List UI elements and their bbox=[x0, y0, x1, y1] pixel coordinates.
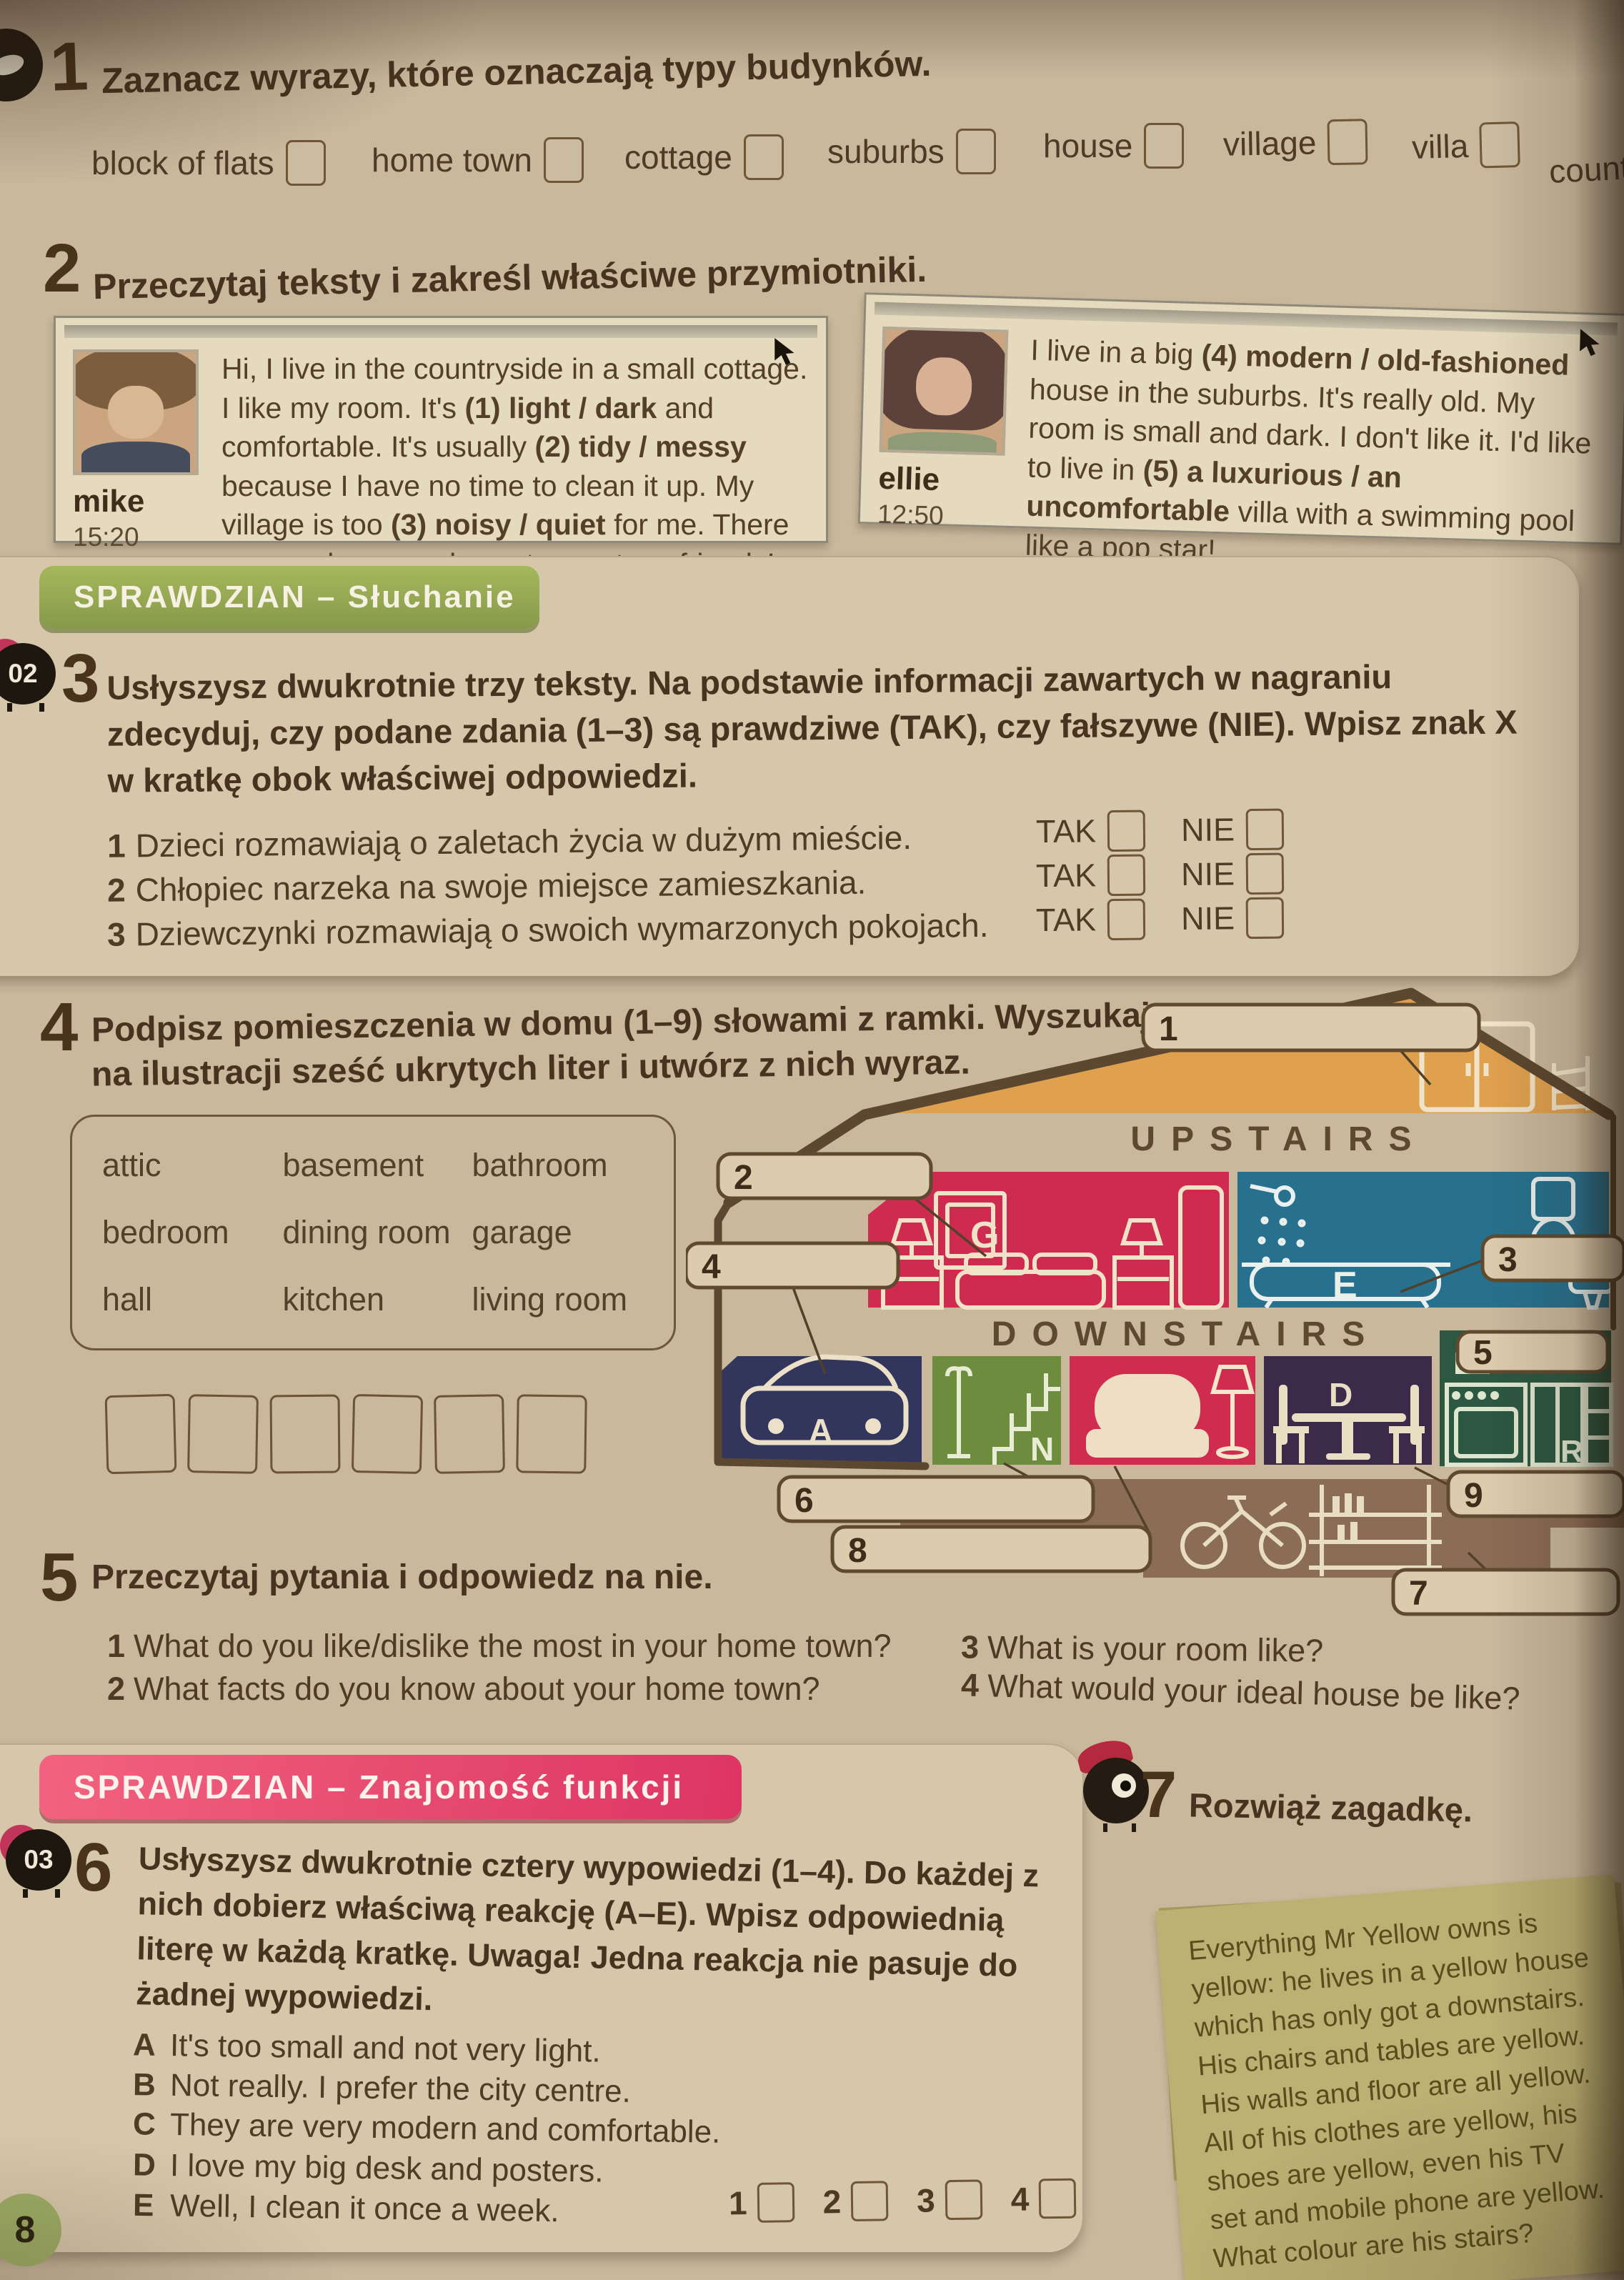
word-label: villa bbox=[1411, 126, 1469, 166]
banner-listening: SPRAWDZIAN – Słuchanie bbox=[39, 566, 539, 629]
avatar-ellie bbox=[879, 327, 1008, 456]
ex7-number: 7 bbox=[1140, 1762, 1177, 1828]
mascot-icon-partial bbox=[0, 29, 43, 101]
chat-post-ellie: ellie 12:50 I live in a big (4) modern /… bbox=[858, 292, 1624, 545]
post-author: ellie bbox=[878, 461, 1012, 500]
post-author: mike bbox=[73, 484, 206, 519]
ex5-title: Przeczytaj pytania i odpowiedz na nie. bbox=[91, 1558, 713, 1597]
bank-word: attic bbox=[102, 1147, 282, 1184]
word-checkbox[interactable] bbox=[1327, 119, 1368, 165]
letter-square[interactable] bbox=[105, 1394, 177, 1475]
audio-track-icon: 03 bbox=[6, 1829, 71, 1898]
nie-label: NIE bbox=[1181, 900, 1235, 937]
letter-square[interactable] bbox=[187, 1394, 259, 1474]
word-label: block of flats bbox=[91, 144, 274, 182]
answer-number: 3 bbox=[917, 2181, 935, 2219]
word-checkbox[interactable] bbox=[1479, 121, 1520, 168]
ex2-number: 2 bbox=[43, 234, 81, 303]
hall-room: N bbox=[932, 1356, 1061, 1468]
word-option: villa bbox=[1411, 121, 1520, 170]
ex5-question-3: 3What is your room like? bbox=[961, 1628, 1324, 1669]
letter-square[interactable] bbox=[270, 1395, 341, 1474]
post-header-bar bbox=[64, 325, 817, 338]
answer-box-4[interactable] bbox=[1039, 2179, 1077, 2219]
letter-square[interactable] bbox=[516, 1394, 587, 1473]
house-label-number-8: 8 bbox=[848, 1532, 867, 1570]
hidden-letter-n: N bbox=[1030, 1430, 1054, 1468]
tak-label: TAK bbox=[1036, 812, 1097, 850]
post-time: 12:50 bbox=[877, 499, 1010, 533]
page-number: 8 bbox=[15, 2209, 36, 2251]
house-label-number-4: 4 bbox=[702, 1248, 721, 1286]
house-label-box-1[interactable] bbox=[1143, 1005, 1479, 1050]
house-illustration: G E UPSTAIRS DOWNSTAIRS bbox=[686, 985, 1624, 1628]
ex7-title: Rozwiąż zagadkę. bbox=[1189, 1786, 1473, 1830]
post-text: I live in a big (4) modern / old-fashion… bbox=[1009, 330, 1608, 580]
answer-box-3[interactable] bbox=[945, 2179, 982, 2220]
ex5-question-1: 1What do you like/dislike the most in yo… bbox=[107, 1628, 892, 1665]
ex5-question-4: 4What would your ideal house be like? bbox=[960, 1666, 1520, 1717]
word-checkbox[interactable] bbox=[544, 137, 584, 183]
word-checkbox[interactable] bbox=[744, 134, 784, 180]
bank-word: kitchen bbox=[282, 1281, 472, 1318]
word-checkbox[interactable] bbox=[1144, 123, 1184, 169]
banner-listening-label: SPRAWDZIAN – Słuchanie bbox=[74, 579, 516, 615]
item-number: 1 bbox=[107, 827, 126, 865]
ex6-option-e: EWell, I clean it once a week. bbox=[133, 2186, 559, 2231]
item-text: Dziewczynki rozmawiają o swoich wymarzon… bbox=[135, 907, 988, 952]
ex6-instruction: Usłyszysz dwukrotnie cztery wypowiedzi (… bbox=[136, 1836, 1090, 2033]
word-option: village bbox=[1222, 119, 1368, 167]
ex1-title: Zaznacz wyrazy, które oznaczają typy bud… bbox=[101, 43, 932, 101]
house-label-number-3: 3 bbox=[1498, 1241, 1518, 1279]
mouse-cursor-icon bbox=[772, 337, 802, 369]
item-number: 3 bbox=[107, 916, 126, 953]
answer-box-2[interactable] bbox=[851, 2181, 889, 2221]
post-text: Hi, I live in the countryside in a small… bbox=[206, 349, 809, 583]
word-option: home town bbox=[372, 137, 584, 183]
ex6-number: 6 bbox=[74, 1833, 112, 1902]
ex3-number: 3 bbox=[61, 644, 99, 713]
tak-checkbox[interactable] bbox=[1107, 899, 1146, 941]
ex2-title: Przeczytaj teksty i zakreśl właściwe prz… bbox=[93, 249, 927, 307]
word-label: cottage bbox=[624, 138, 732, 176]
word-label: village bbox=[1223, 123, 1317, 163]
answer-number: 4 bbox=[1010, 2180, 1029, 2219]
hidden-letter-a: A bbox=[809, 1412, 832, 1449]
ex5-question-2: 2What facts do you know about your home … bbox=[107, 1671, 820, 1708]
tak-checkbox[interactable] bbox=[1107, 855, 1146, 897]
bank-word: garage bbox=[472, 1214, 652, 1251]
ex1-number: 1 bbox=[49, 32, 89, 102]
item-number: 2 bbox=[107, 872, 126, 909]
bank-word: living room bbox=[472, 1281, 652, 1318]
nie-checkbox[interactable] bbox=[1246, 809, 1285, 851]
word-checkbox[interactable] bbox=[286, 140, 326, 186]
ex6-answer-row: 1 2 3 4 bbox=[729, 2179, 1077, 2224]
answer-box-1[interactable] bbox=[757, 2182, 794, 2223]
word-label: home town bbox=[372, 141, 532, 179]
answer-number: 1 bbox=[729, 2184, 747, 2222]
letter-square[interactable] bbox=[352, 1394, 423, 1474]
bank-word: bedroom bbox=[102, 1214, 282, 1251]
ex3-instruction: Usłyszysz dwukrotnie trzy teksty. Na pod… bbox=[106, 652, 1544, 804]
banner-functions: SPRAWDZIAN – Znajomość funkcji bbox=[39, 1755, 742, 1819]
house-label-number-2: 2 bbox=[734, 1159, 753, 1197]
ex5-number: 5 bbox=[40, 1543, 78, 1612]
word-label: house bbox=[1043, 126, 1132, 165]
bank-word: bathroom bbox=[472, 1147, 652, 1184]
living-room bbox=[1070, 1356, 1255, 1465]
word-checkbox[interactable] bbox=[956, 129, 996, 174]
nie-label: NIE bbox=[1181, 811, 1235, 849]
armchair-icon bbox=[1086, 1374, 1209, 1458]
house-label-box-6[interactable] bbox=[779, 1477, 1093, 1521]
bank-word: basement bbox=[282, 1147, 472, 1184]
post-time: 15:20 bbox=[73, 522, 206, 552]
item-text: Chłopiec narzeka na swoje miejsce zamies… bbox=[135, 864, 866, 909]
nie-checkbox[interactable] bbox=[1246, 897, 1285, 940]
word-option: block of flats bbox=[91, 140, 326, 186]
house-label-number-1: 1 bbox=[1159, 1010, 1178, 1048]
workbook-page: 1 Zaznacz wyrazy, które oznaczają typy b… bbox=[0, 0, 1624, 2280]
answer-number: 2 bbox=[822, 2182, 841, 2221]
downstairs-label: DOWNSTAIRS bbox=[992, 1315, 1380, 1353]
letter-square[interactable] bbox=[434, 1394, 505, 1474]
hidden-letter-e: E bbox=[1332, 1265, 1358, 1306]
upstairs-label: UPSTAIRS bbox=[1130, 1120, 1427, 1158]
word-option: countryside bbox=[1548, 137, 1624, 194]
riddle-note: Everything Mr Yellow owns is yellow: he … bbox=[1155, 1874, 1624, 2280]
hidden-letter-g: G bbox=[970, 1215, 999, 1256]
house-label-number-5: 5 bbox=[1473, 1334, 1493, 1372]
avatar-mike bbox=[73, 349, 199, 475]
word-option: house bbox=[1043, 123, 1184, 169]
bank-word: dining room bbox=[282, 1214, 472, 1251]
hidden-word-squares bbox=[106, 1395, 599, 1477]
audio-track-number: 02 bbox=[0, 643, 56, 705]
ex6-option-c: CThey are very modern and comfortable. bbox=[133, 2105, 721, 2151]
tak-checkbox[interactable] bbox=[1107, 810, 1146, 852]
audio-track-icon: 02 bbox=[0, 643, 56, 712]
chat-post-mike: mike 15:20 Hi, I live in the countryside… bbox=[54, 316, 828, 543]
riddle-text: Everything Mr Yellow owns is yellow: he … bbox=[1187, 1908, 1605, 2274]
word-option: cottage bbox=[624, 134, 784, 180]
audio-track-number: 03 bbox=[6, 1829, 71, 1891]
word-option: suburbs bbox=[827, 129, 996, 174]
banner-functions-label: SPRAWDZIAN – Znajomość funkcji bbox=[74, 1768, 684, 1806]
house-label-number-7: 7 bbox=[1409, 1575, 1428, 1613]
word-label: countryside bbox=[1548, 144, 1624, 191]
hidden-letter-r: R bbox=[1560, 1434, 1583, 1469]
ex6-option-d: DI love my big desk and posters. bbox=[133, 2146, 604, 2191]
item-text: Dzieci rozmawiają o zaletach życia w duż… bbox=[135, 819, 912, 864]
house-label-number-6: 6 bbox=[794, 1482, 814, 1520]
house-label-box-8[interactable] bbox=[832, 1527, 1150, 1571]
mouse-cursor-icon bbox=[1576, 327, 1607, 361]
hidden-letter-d: D bbox=[1329, 1376, 1352, 1413]
ex6-option-a: AIt's too small and not very light. bbox=[133, 2026, 601, 2071]
ex4-number: 4 bbox=[40, 993, 78, 1062]
house-label-number-9: 9 bbox=[1464, 1477, 1483, 1515]
nie-checkbox[interactable] bbox=[1246, 853, 1285, 895]
ex6-option-b: BNot really. I prefer the city centre. bbox=[133, 2066, 631, 2111]
dining-room: D bbox=[1264, 1356, 1432, 1465]
tak-label: TAK bbox=[1036, 857, 1097, 895]
tak-label: TAK bbox=[1036, 901, 1097, 939]
bank-word: hall bbox=[102, 1281, 282, 1318]
nie-label: NIE bbox=[1181, 855, 1235, 893]
word-bank-box: attic basement bathroom bedroom dining r… bbox=[70, 1115, 676, 1350]
garage-room: A bbox=[718, 1356, 922, 1465]
word-label: suburbs bbox=[827, 132, 945, 171]
